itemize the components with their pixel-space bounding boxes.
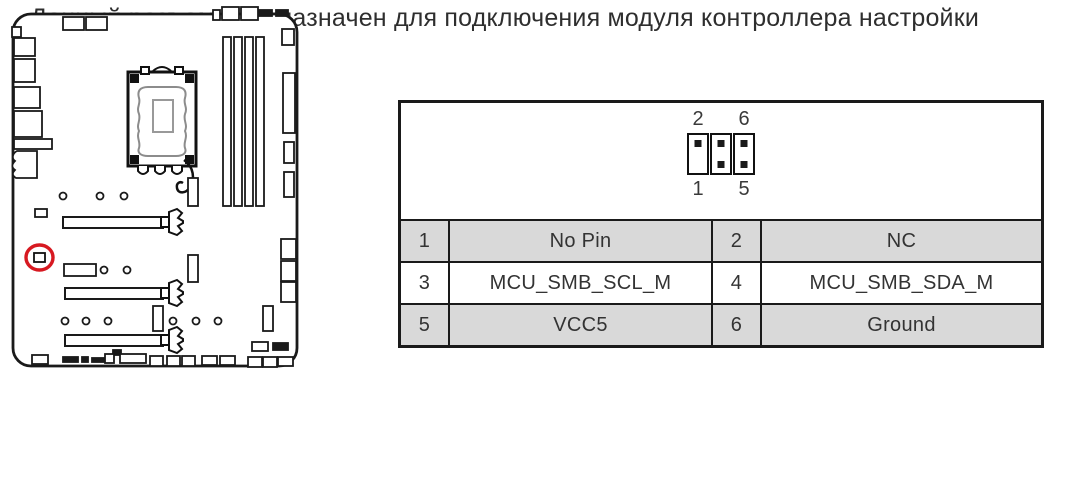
pin-column-3 <box>733 133 755 175</box>
pin-header-diagram: 2 6 1 5 <box>687 107 755 201</box>
pin-column-2 <box>710 133 732 175</box>
pin-label-top-left: 2 <box>687 107 709 131</box>
pin-number-cell: 1 <box>401 221 448 261</box>
pin-number-cell: 5 <box>401 305 448 345</box>
signal-name-cell: MCU_SMB_SDA_M <box>760 263 1041 303</box>
signal-name-cell: MCU_SMB_SCL_M <box>448 263 711 303</box>
pin-number-cell: 2 <box>711 221 760 261</box>
pin-label-top-right: 6 <box>733 107 755 131</box>
pin-3-square <box>718 161 725 168</box>
cpu-die <box>153 100 173 132</box>
pin-number-cell: 4 <box>711 263 760 303</box>
pin-6-square <box>741 140 748 147</box>
pin-column-1 <box>687 133 709 175</box>
manual-page: { "description": { "line1": "Данный разъ… <box>0 0 1066 487</box>
sata-ports <box>281 239 296 302</box>
pin-label-bottom-right: 5 <box>733 177 755 201</box>
signal-name-cell: VCC5 <box>448 305 711 345</box>
pin-2-square <box>695 140 702 147</box>
pin-4-square <box>718 140 725 147</box>
pin-5-square <box>741 161 748 168</box>
pin-number-cell: 3 <box>401 263 448 303</box>
pin-number-cell: 6 <box>711 305 760 345</box>
table-row: 5 VCC5 6 Ground <box>401 303 1041 345</box>
table-row: 3 MCU_SMB_SCL_M 4 MCU_SMB_SDA_M <box>401 261 1041 303</box>
pin-definition-table: 2 6 1 5 1 No Pin 2 NC 3 MCU_SMB_SCL_M 4 … <box>398 100 1044 348</box>
signal-name-cell: Ground <box>760 305 1041 345</box>
table-row: 1 No Pin 2 NC <box>401 219 1041 261</box>
pin-header-area: 2 6 1 5 <box>401 103 1041 219</box>
motherboard-diagram <box>0 0 330 397</box>
pin-label-bottom-left: 1 <box>687 177 709 201</box>
signal-name-cell: No Pin <box>448 221 711 261</box>
signal-name-cell: NC <box>760 221 1041 261</box>
